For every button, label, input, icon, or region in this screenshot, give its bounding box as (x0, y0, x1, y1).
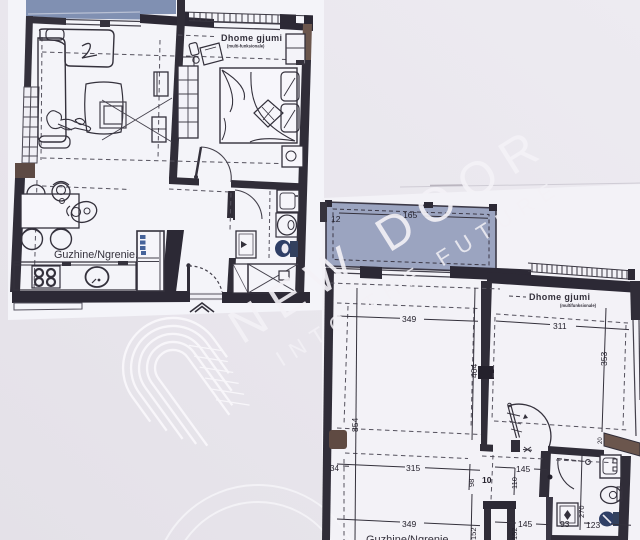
svg-text:20: 20 (598, 437, 604, 444)
svg-text:315: 315 (406, 463, 420, 473)
svg-text:12: 12 (331, 214, 341, 224)
svg-text:349: 349 (402, 519, 416, 529)
svg-text:Guzhine/Ngrenie.: Guzhine/Ngrenie. (54, 249, 138, 261)
svg-text:10: 10 (482, 475, 492, 485)
svg-text:Guzhine/Ngrenie: Guzhine/Ngrenie (366, 534, 449, 540)
svg-text:349: 349 (402, 314, 416, 324)
svg-text:123: 123 (586, 520, 600, 530)
svg-text:93: 93 (560, 519, 570, 529)
svg-text:145: 145 (518, 519, 532, 529)
svg-text:110: 110 (510, 477, 519, 489)
svg-text:404: 404 (469, 364, 479, 378)
svg-text:152: 152 (469, 527, 478, 540)
svg-text:34: 34 (330, 464, 339, 473)
svg-text:854: 854 (350, 418, 360, 432)
svg-text:(multi-funksionale): (multi-funksionale) (227, 44, 265, 49)
svg-text:311: 311 (553, 321, 567, 331)
svg-text:145: 145 (516, 464, 530, 474)
svg-text:Dhome gjumi: Dhome gjumi (529, 292, 590, 302)
svg-text:98: 98 (467, 479, 476, 487)
svg-text:Dhome gjumi: Dhome gjumi (221, 33, 282, 43)
svg-text:270: 270 (577, 505, 586, 518)
svg-text:353: 353 (599, 352, 609, 366)
svg-text:152: 152 (510, 527, 519, 540)
svg-text:(multifunksionale): (multifunksionale) (560, 303, 597, 308)
